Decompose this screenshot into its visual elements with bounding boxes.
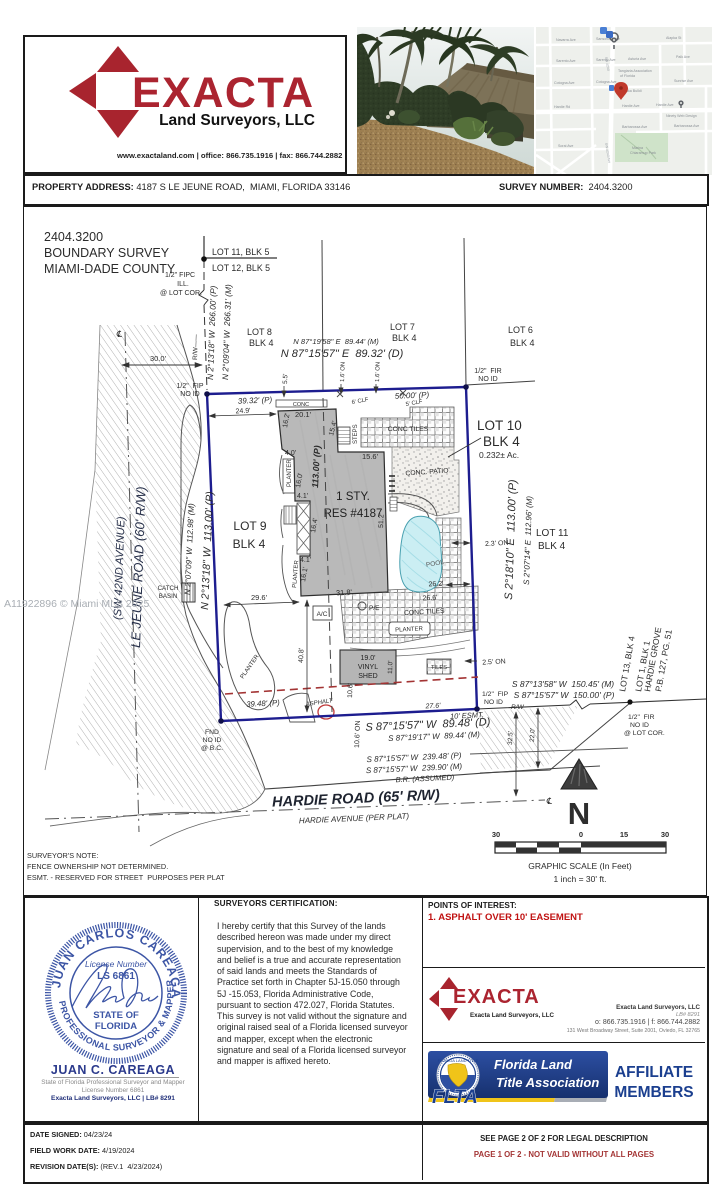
svg-text:FLTA: FLTA [432,1087,478,1106]
svg-text:N 2°09'04" W 266.31' (M): N 2°09'04" W 266.31' (M) [220,284,233,380]
svg-text:NO ID: NO ID [630,722,649,729]
svg-text:15: 15 [620,830,628,839]
svg-text:2.5' ON: 2.5' ON [482,658,506,666]
svg-text:FENCE OWNERSHIP NOT DETERMINED: FENCE OWNERSHIP NOT DETERMINED. [27,862,168,871]
svg-text:SURVEYOR'S NOTE:: SURVEYOR'S NOTE: [27,851,98,860]
svg-text:LS 6861: LS 6861 [97,971,135,982]
svg-text:N: N [568,796,590,831]
svg-text:20.1': 20.1' [295,410,312,419]
svg-text:LOT 12, BLK 5: LOT 12, BLK 5 [212,263,270,273]
svg-text:6' CLF: 6' CLF [351,397,369,406]
svg-text:10.6' ON: 10.6' ON [354,720,362,748]
svg-text:LOT 6: LOT 6 [508,325,533,335]
svg-text:S 2°07'14" E 112.96' (M): S 2°07'14" E 112.96' (M) [522,495,534,585]
svg-text:FLORIDA LAND TITLE: FLORIDA LAND TITLE [438,1058,479,1063]
svg-text:1/2" FIR: 1/2" FIR [628,714,655,721]
svg-text:LOT 11: LOT 11 [536,528,569,539]
svg-text:BLK 4: BLK 4 [233,537,266,551]
svg-text:PLANTER: PLANTER [240,653,261,680]
svg-text:MIAMI-DADE COUNTY: MIAMI-DADE COUNTY [44,262,176,276]
svg-text:LOT 7: LOT 7 [390,322,415,332]
svg-text:26.6': 26.6' [422,595,437,603]
svg-text:S 87°13'58" W 150.45' (M): S 87°13'58" W 150.45' (M) [512,679,614,689]
svg-text:4.1': 4.1' [300,557,311,564]
svg-text:VINYL: VINYL [358,664,378,671]
svg-text:BLK 4: BLK 4 [510,338,535,348]
svg-text:NO ID: NO ID [180,391,199,398]
svg-text:B.R. (ASSUMED): B.R. (ASSUMED) [395,773,455,785]
svg-text:SHED: SHED [358,673,377,680]
svg-text:29.6': 29.6' [251,593,268,602]
svg-text:0.232± Ac.: 0.232± Ac. [479,450,519,460]
svg-text:31.8': 31.8' [336,588,353,598]
svg-text:@ LOT COR.: @ LOT COR. [624,730,665,737]
svg-text:50.00' (P): 50.00' (P) [395,390,430,401]
svg-text:BLK 4: BLK 4 [483,434,520,449]
svg-text:1/2" FIR: 1/2" FIR [474,368,501,375]
svg-text:1/2" FIP: 1/2" FIP [177,383,204,390]
svg-text:GRAPHIC SCALE (In Feet): GRAPHIC SCALE (In Feet) [528,861,632,871]
svg-text:N 2°13'18" W 266.00' (P): N 2°13'18" W 266.00' (P) [205,285,218,380]
svg-text:BOUNDARY SURVEY: BOUNDARY SURVEY [44,246,170,260]
svg-text:2.3' ON: 2.3' ON [485,540,509,548]
svg-text:TILES: TILES [431,665,447,671]
svg-text:FND: FND [205,729,219,736]
svg-text:30: 30 [492,830,500,839]
svg-text:26.2': 26.2' [428,581,443,589]
svg-text:5.5': 5.5' [282,374,289,385]
svg-text:1 inch = 30' ft.: 1 inch = 30' ft. [554,874,607,884]
svg-text:R/W——: R/W—— [192,334,200,360]
svg-text:30: 30 [661,830,669,839]
svg-text:PLANTER: PLANTER [287,459,293,487]
svg-text:BLK 4: BLK 4 [249,338,274,348]
svg-text:FLORIDA: FLORIDA [95,1021,137,1032]
svg-text:P/E: P/E [369,605,380,612]
svg-text:30.0': 30.0' [150,354,167,363]
svg-text:HARDIE ROAD (65' R/W): HARDIE ROAD (65' R/W) [272,787,440,810]
svg-text:1/2" FIP: 1/2" FIP [482,691,509,698]
svg-text:CONC: CONC [293,402,309,408]
svg-text:11.0': 11.0' [387,660,394,674]
svg-text:R/W: R/W [511,704,525,711]
svg-text:1.6' ON: 1.6' ON [340,362,347,382]
svg-text:License Number: License Number [85,959,148,969]
svg-text:A11922896 © Miami MLS 2025: A11922896 © Miami MLS 2025 [4,598,149,610]
svg-text:4.1': 4.1' [297,493,308,500]
svg-text:RES #4187: RES #4187 [324,508,383,520]
svg-text:BLK 4: BLK 4 [392,333,417,343]
svg-text:15.6': 15.6' [362,452,379,461]
svg-text:ESMT. - RESERVED FOR STREET P: ESMT. - RESERVED FOR STREET PURPOSES PER… [27,873,225,882]
svg-text:1 STY.: 1 STY. [336,491,370,503]
svg-text:LOT 10: LOT 10 [477,418,522,433]
svg-text:NO ID: NO ID [484,699,503,706]
svg-text:℄: ℄ [546,796,552,806]
svg-text:LOT 11, BLK 5: LOT 11, BLK 5 [212,247,269,257]
svg-text:1.6' ON: 1.6' ON [375,362,382,382]
svg-text:A/C: A/C [317,611,328,618]
svg-text:@ LOT COR.: @ LOT COR. [160,290,202,297]
svg-text:N 2°07'09" W 112.98' (M): N 2°07'09" W 112.98' (M) [183,503,196,595]
svg-text:ASPHALT: ASPHALT [304,698,334,708]
svg-text:CONC TILES: CONC TILES [388,426,429,433]
svg-text:51.2': 51.2' [378,513,386,528]
svg-text:39.48' (P): 39.48' (P) [246,698,280,709]
svg-text:27.6': 27.6' [424,703,441,711]
svg-text:32.5': 32.5' [507,731,514,745]
svg-text:BLK 4: BLK 4 [538,541,566,552]
svg-text:4.0': 4.0' [285,450,296,457]
svg-text:40.8': 40.8' [298,648,306,663]
svg-text:BASIN: BASIN [159,593,178,600]
svg-text:2404.3200: 2404.3200 [44,230,103,244]
svg-text:LOT 9: LOT 9 [233,519,266,533]
svg-text:HARDIE AVENUE (PER PLAT): HARDIE AVENUE (PER PLAT) [299,812,410,826]
svg-text:STEPS: STEPS [353,424,359,444]
svg-text:10.6': 10.6' [347,683,355,698]
svg-text:Title Association: Title Association [496,1075,599,1090]
svg-text:24.9': 24.9' [235,408,250,416]
svg-text:N 87°15'57" E 89.32' (D): N 87°15'57" E 89.32' (D) [281,348,404,360]
svg-text:STATE OF: STATE OF [93,1010,139,1021]
svg-text:19.0': 19.0' [361,655,376,662]
svg-text:0: 0 [579,830,583,839]
svg-text:LOT 8: LOT 8 [247,327,272,337]
svg-text:22.0': 22.0' [529,728,536,742]
svg-text:S 87°15'57" W 150.00' (P): S 87°15'57" W 150.00' (P) [514,690,615,700]
svg-text:Florida Land: Florida Land [494,1057,573,1072]
svg-text:NO ID: NO ID [478,376,497,383]
svg-text:℄: ℄ [116,329,122,339]
svg-text:CATCH: CATCH [158,585,179,592]
svg-text:N 87°19'58" E 89.44' (M): N 87°19'58" E 89.44' (M) [293,337,379,346]
svg-text:@ B.C.: @ B.C. [201,745,223,752]
svg-text:NO ID: NO ID [203,737,222,744]
svg-text:39.32' (P): 39.32' (P) [238,395,273,406]
svg-text:ILL.: ILL. [177,281,189,288]
